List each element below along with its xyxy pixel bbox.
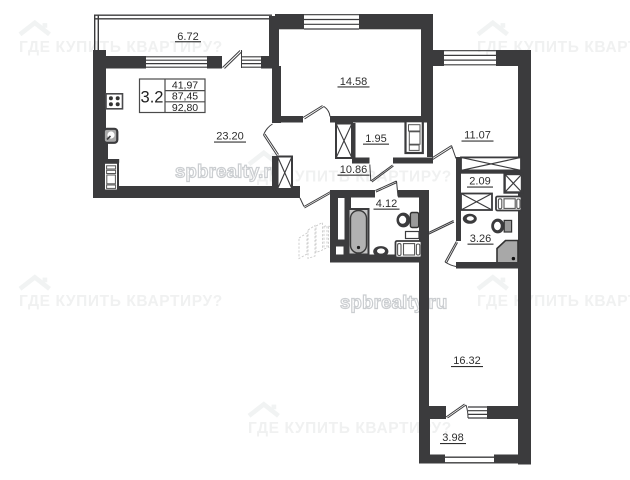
svg-text:11.07: 11.07: [464, 130, 491, 142]
svg-text:spbrealty.ru: spbrealty.ru: [175, 161, 283, 182]
svg-text:ГДЕ КУПИТЬ КВАРТИРУ?: ГДЕ КУПИТЬ КВАРТИРУ?: [19, 293, 223, 310]
svg-text:1.95: 1.95: [365, 133, 386, 145]
svg-text:4.12: 4.12: [376, 198, 397, 210]
svg-text:10.86: 10.86: [340, 164, 368, 176]
svg-text:87,45: 87,45: [172, 91, 198, 103]
svg-text:14.58: 14.58: [340, 76, 368, 88]
svg-text:41,97: 41,97: [172, 80, 198, 92]
svg-text:92,80: 92,80: [172, 102, 198, 114]
svg-text:spbrealty.ru: spbrealty.ru: [340, 292, 448, 313]
svg-text:3.2: 3.2: [141, 89, 164, 107]
svg-text:16.32: 16.32: [453, 355, 481, 367]
svg-text:2.09: 2.09: [469, 176, 490, 188]
svg-text:ГДЕ КУПИТЬ КВАРТИРУ?: ГДЕ КУПИТЬ КВАРТИРУ?: [477, 293, 630, 310]
svg-text:23.20: 23.20: [216, 131, 244, 143]
svg-text:3.98: 3.98: [442, 432, 463, 444]
svg-text:3.26: 3.26: [470, 233, 491, 245]
